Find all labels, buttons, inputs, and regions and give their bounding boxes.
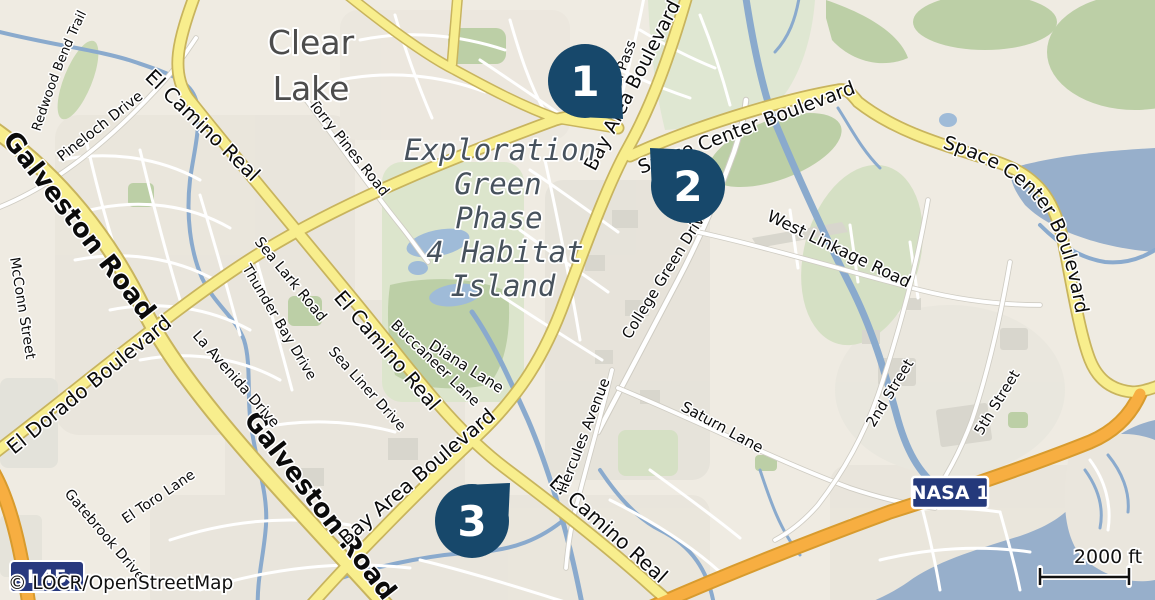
map-canvas[interactable]: Galveston Road Galveston Road El Camino … bbox=[0, 0, 1155, 600]
label-exploration-line1: Exploration bbox=[404, 133, 596, 167]
marker-2-number: 2 bbox=[673, 162, 702, 211]
label-clear-lake-line2: Lake bbox=[273, 69, 350, 108]
label-clear-lake-line1: Clear bbox=[268, 23, 355, 62]
label-exploration-line5: Island bbox=[451, 269, 556, 303]
label-exploration-line3: Phase bbox=[455, 201, 542, 235]
scale-bar-label: 2000 ft bbox=[1074, 546, 1142, 568]
attribution: © LOCR/OpenStreetMap bbox=[8, 573, 233, 594]
marker-1-number: 1 bbox=[570, 57, 599, 106]
label-exploration-line4: 4 Habitat bbox=[426, 235, 583, 269]
label-exploration-line2: Green bbox=[454, 167, 541, 201]
nasa1-shield: NASA 1 bbox=[911, 477, 990, 508]
marker-3-number: 3 bbox=[457, 497, 486, 546]
nasa1-shield-label: NASA 1 bbox=[911, 482, 990, 504]
